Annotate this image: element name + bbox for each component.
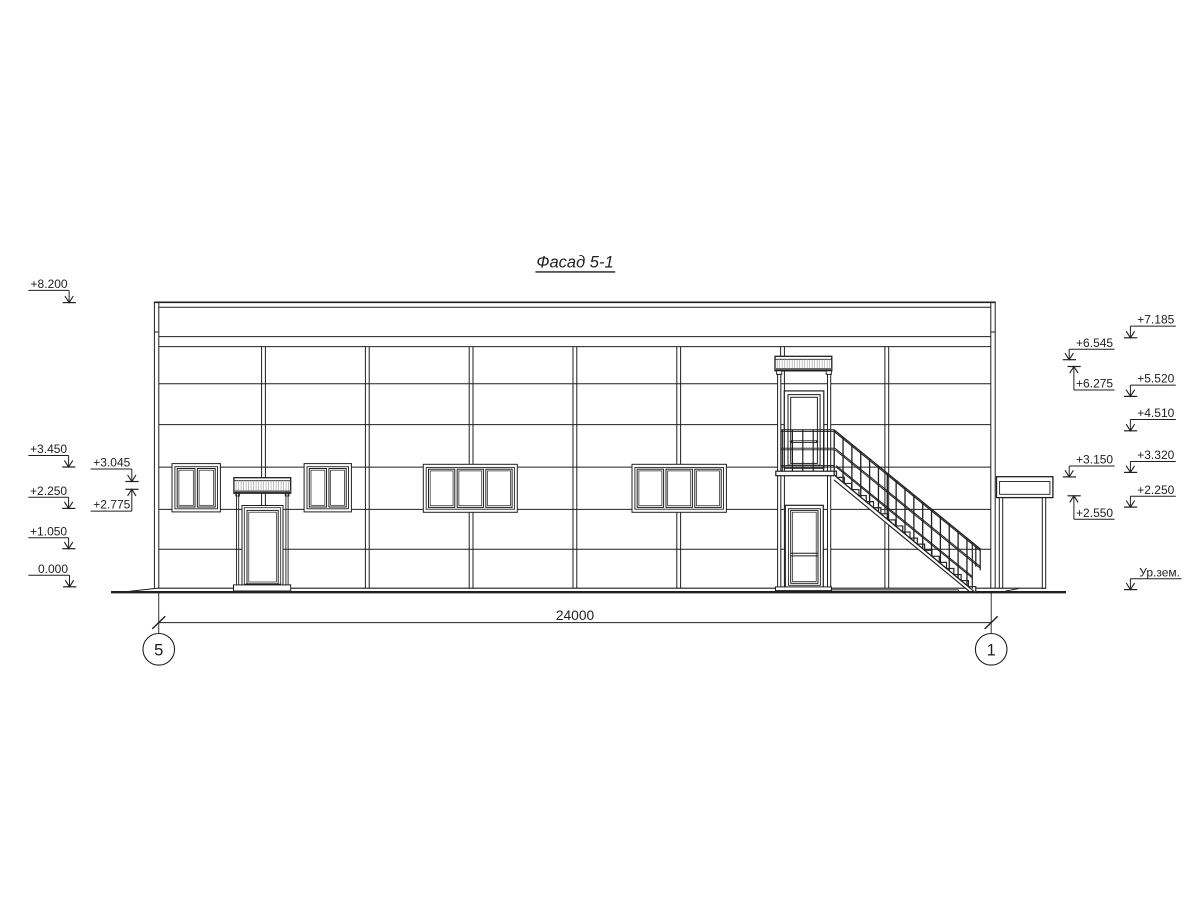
svg-text:Ур.зем.: Ур.зем. [1139,565,1180,579]
svg-text:5: 5 [154,641,163,659]
svg-text:+3.450: +3.450 [30,442,67,456]
svg-text:+7.185: +7.185 [1137,313,1174,327]
svg-text:+3.045: +3.045 [93,456,130,470]
svg-text:+8.200: +8.200 [31,277,68,291]
svg-text:Фасад 5-1: Фасад 5-1 [536,254,613,272]
svg-text:0.000: 0.000 [38,562,68,576]
svg-text:+5.520: +5.520 [1137,372,1174,386]
svg-text:24000: 24000 [556,608,595,623]
svg-text:1: 1 [987,641,996,659]
svg-text:+6.545: +6.545 [1076,336,1113,350]
svg-text:+1.050: +1.050 [30,524,67,538]
svg-text:+3.150: +3.150 [1076,453,1113,467]
svg-text:+4.510: +4.510 [1137,406,1174,420]
svg-text:+2.250: +2.250 [30,484,67,498]
svg-text:+2.775: +2.775 [93,498,130,512]
svg-text:+2.250: +2.250 [1137,483,1174,497]
svg-text:+3.320: +3.320 [1137,448,1174,462]
svg-text:+2.550: +2.550 [1076,506,1113,520]
svg-text:+6.275: +6.275 [1076,377,1113,391]
